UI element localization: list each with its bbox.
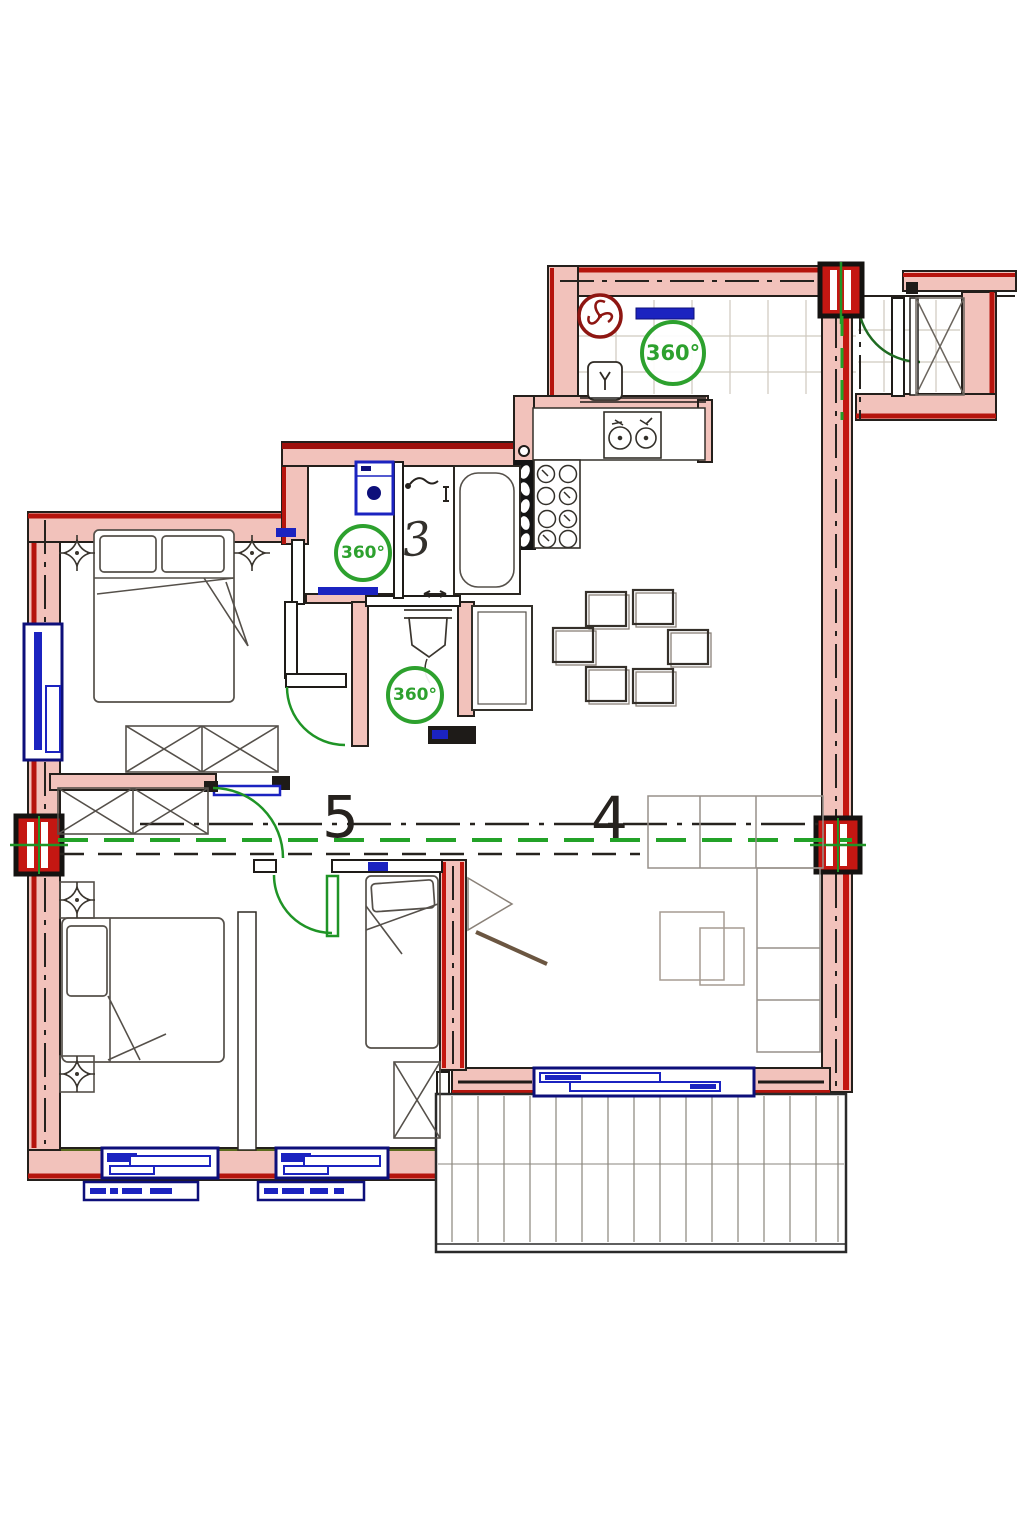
dining-chairs <box>553 590 711 706</box>
section-marker-top <box>820 262 862 324</box>
downlight-icon <box>59 882 95 918</box>
midbedroom-furniture <box>366 876 440 1138</box>
floor-plan-drawing <box>0 0 1024 1536</box>
bed-icon <box>94 530 248 702</box>
dining-chair-icon <box>586 592 629 629</box>
radiator-wc <box>432 730 448 739</box>
badge-label: 360° <box>646 341 700 365</box>
dining-chair-icon <box>553 628 596 665</box>
floor-plan-stage: 360° 360° 360° 5 4 3 <box>0 0 1024 1536</box>
door-swing-icon-hall <box>286 674 346 745</box>
door-b-glazing <box>214 786 280 795</box>
room5-furniture <box>58 788 224 1092</box>
window-left <box>24 624 62 760</box>
room-number-bathroom: 3 <box>399 511 434 568</box>
window-balcony-door <box>534 1068 754 1096</box>
kitchen-sink-icon <box>604 412 661 458</box>
tv-icon <box>468 878 547 964</box>
wall-bedroom1-right-b <box>285 602 297 678</box>
window-bottom-2 <box>258 1148 388 1200</box>
wall-hall-top-a <box>254 860 276 872</box>
section-marker-left <box>10 816 68 874</box>
wall-bedroom2-partition <box>238 912 256 1150</box>
window-bottom-1 <box>84 1148 218 1200</box>
corridor-shelf <box>636 308 694 319</box>
armchair <box>700 928 744 985</box>
wall-bath-wc-divider <box>366 596 460 606</box>
bed-icon <box>62 918 224 1062</box>
radiator-bedroom1 <box>276 528 296 537</box>
fridge-icon <box>472 606 532 710</box>
dining-chair-icon <box>668 630 711 667</box>
dining-chair-icon <box>633 669 676 706</box>
wardrobe-icon <box>394 1062 440 1138</box>
section-marker-right <box>810 818 866 872</box>
badge-360-bathroom[interactable]: 360° <box>334 524 392 582</box>
wall-bedroom1-right-a <box>292 540 304 604</box>
section-label-5: 5 <box>322 783 359 851</box>
wardrobe-icon <box>126 726 278 772</box>
badge-360-wc[interactable]: 360° <box>386 666 444 724</box>
dining-chair-icon <box>633 590 676 627</box>
coffee-table <box>660 912 724 980</box>
washing-machine-icon-corridor <box>588 362 622 400</box>
sofa-icon <box>648 796 823 1052</box>
badge-360-corridor[interactable]: 360° <box>640 320 706 386</box>
door-swing-icon-midbedroom <box>274 875 338 936</box>
fan-icon <box>579 295 621 337</box>
radiator-midbedroom <box>368 862 388 871</box>
faucet-icon <box>406 478 449 501</box>
radiator-bath <box>318 587 378 595</box>
badge-label: 360° <box>341 543 385 563</box>
bathtub-icon <box>454 466 520 594</box>
washing-machine-icon <box>356 462 393 514</box>
stove-icon <box>534 460 580 548</box>
bed-icon <box>366 876 438 1048</box>
badge-label: 360° <box>393 685 437 705</box>
wardrobe-icon <box>58 788 208 834</box>
section-label-4: 4 <box>591 784 628 852</box>
balcony <box>436 1094 846 1252</box>
wall-wc-left <box>352 602 368 746</box>
entry-closet <box>910 298 964 395</box>
dining-chair-icon <box>586 667 629 704</box>
bedroom1-furniture <box>59 530 278 772</box>
wall-vestibule-partition <box>892 298 904 396</box>
